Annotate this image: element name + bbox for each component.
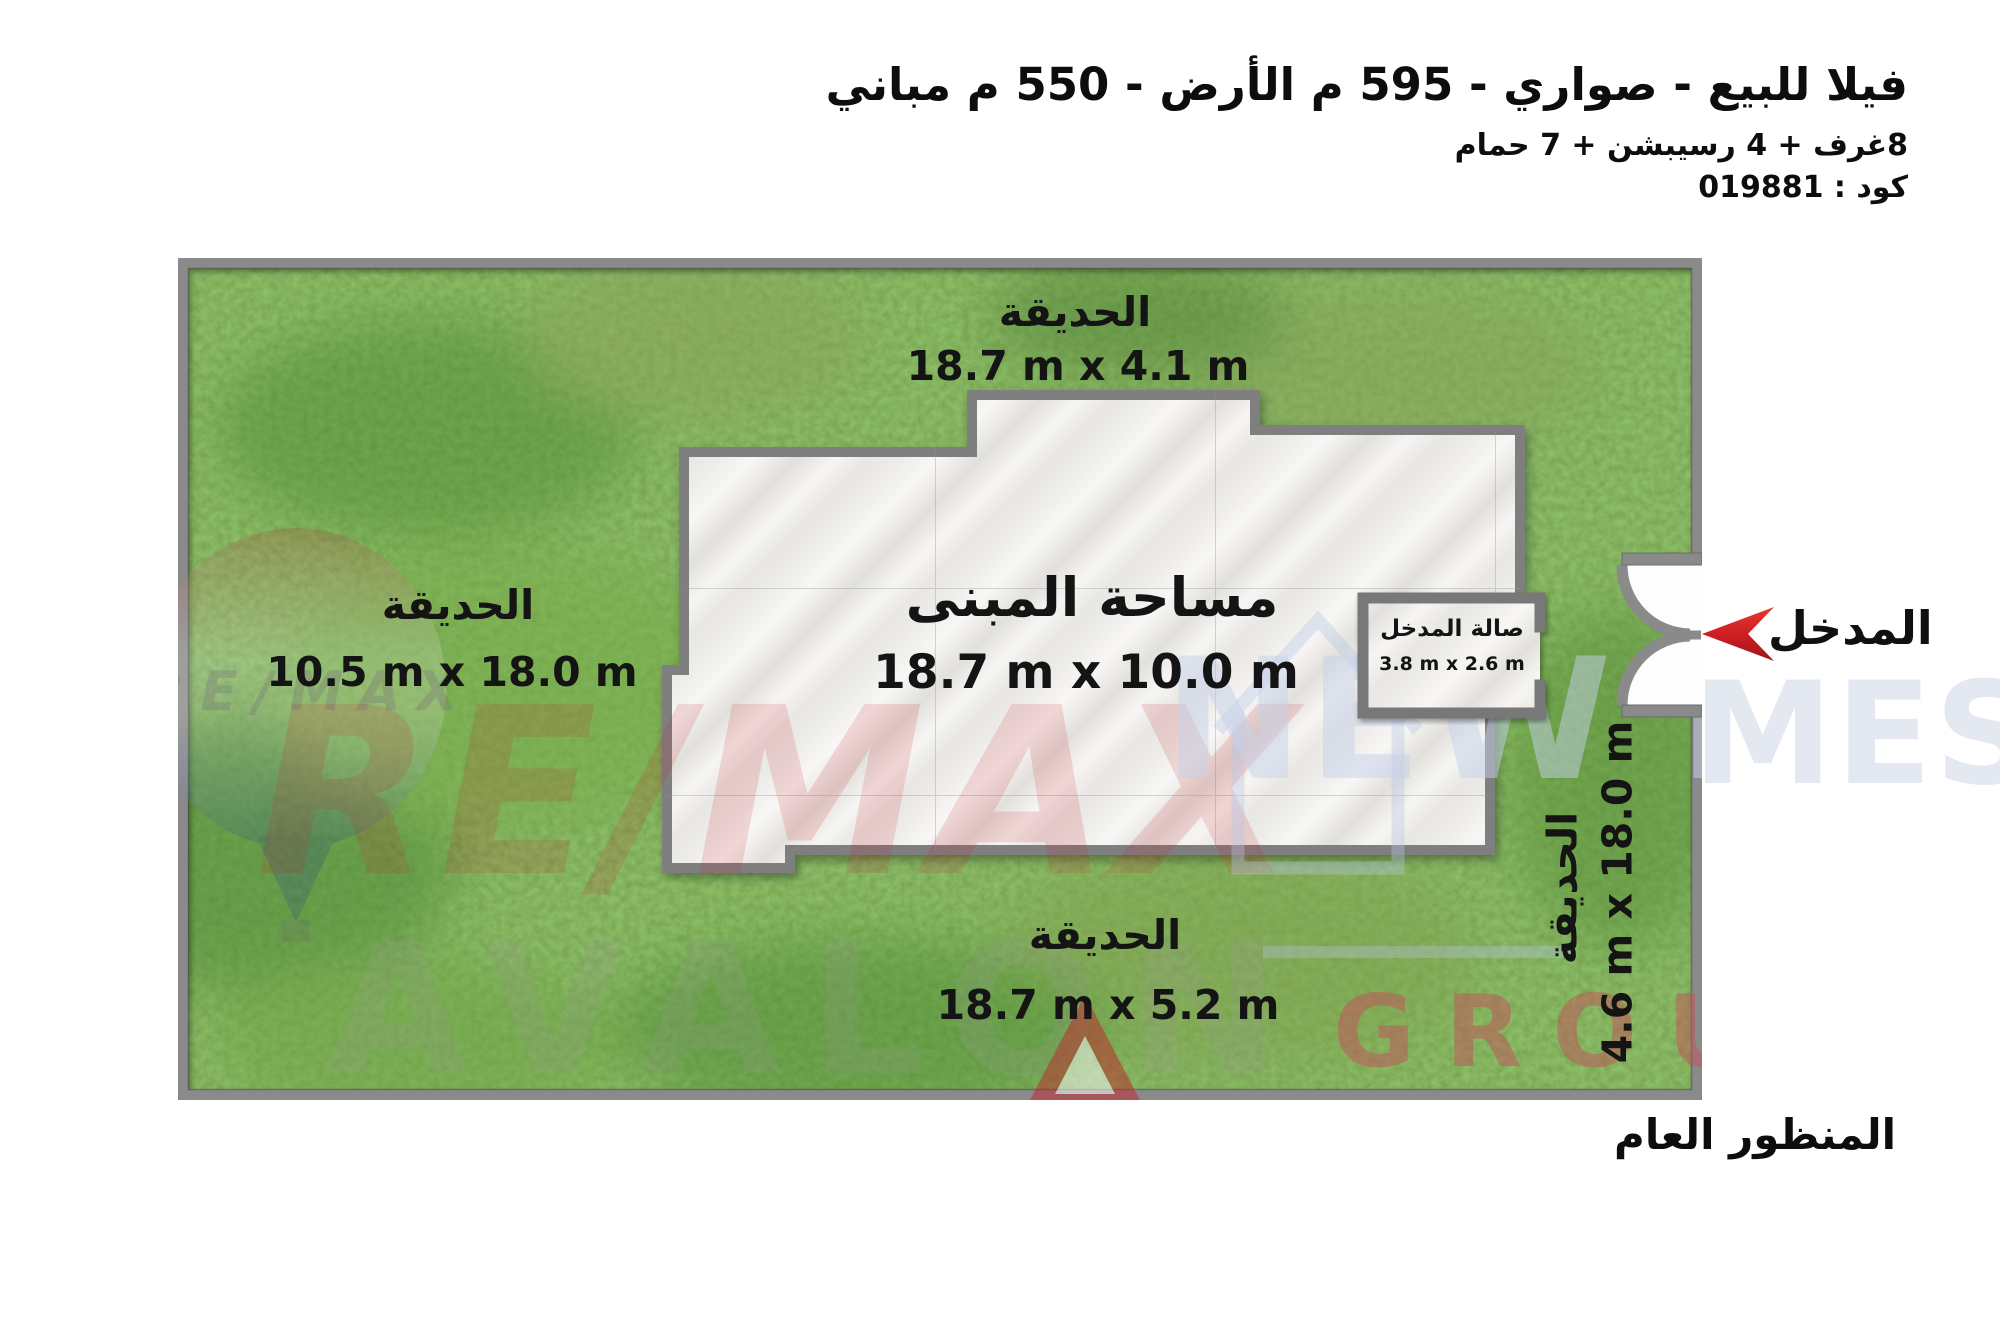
garden-bottom-label: الحديقة [1029, 914, 1181, 957]
entrance-hall-size: 3.8 m x 2.6 m [1379, 655, 1525, 675]
garden-left-size: 10.5 m x 18.0 m [266, 651, 637, 694]
code-line: كود : 019881 [1698, 170, 1908, 205]
gate-top-wall [1622, 553, 1702, 565]
page-title: فيلا للبيع - صواري - 595 م الأرض - 550 م… [826, 58, 1908, 111]
specs-line: 8غرف + 4 رسيبشن + 7 حمام [1455, 128, 1908, 163]
gate-bottom-wall [1622, 705, 1702, 717]
garden-right-size: 4.6 m x 18.0 m [1598, 721, 1639, 1064]
new-homes-underline [1263, 946, 1573, 958]
garden-right-label: الحديقة [1543, 812, 1584, 964]
garden-top-label: الحديقة [999, 291, 1151, 334]
garden-top-size: 18.7 m x 4.1 m [907, 345, 1250, 388]
building-size: 18.7 m x 10.0 m [873, 648, 1299, 697]
building-label: مساحة المبنى [906, 570, 1279, 627]
plan-caption: المنظور العام [1614, 1110, 1896, 1159]
garden-left-label: الحديقة [382, 584, 534, 627]
new-homes-watermark-outside: MES [1692, 652, 2000, 817]
entrance-label: المدخل [1768, 601, 1933, 655]
entrance-hall-label: صالة المدخل [1380, 617, 1524, 641]
entrance-arrow-icon [1698, 603, 1778, 665]
group-watermark: GROUP [1333, 973, 1702, 1090]
flyer-page: فيلا للبيع - صواري - 595 م الأرض - 550 م… [0, 0, 2000, 1333]
garden-bottom-size: 18.7 m x 5.2 m [937, 984, 1280, 1027]
